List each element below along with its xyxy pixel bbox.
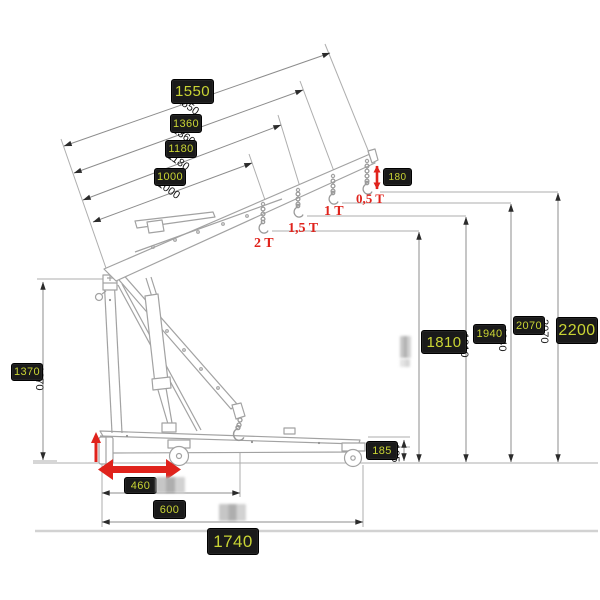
- blurred-watermark: [400, 336, 411, 358]
- dim-badge-1370: 1370: [11, 363, 43, 381]
- dim-badge-1940: 1940: [473, 324, 506, 344]
- dim-badge-1740: 1740: [207, 528, 259, 555]
- dim-badge-1360: 1360: [170, 114, 202, 133]
- blurred-watermark: [219, 504, 246, 521]
- hook-0-5t: [363, 164, 372, 194]
- base-beam: [100, 431, 360, 453]
- dim-badge-1810: 1810: [421, 330, 467, 354]
- dim-badge-2200: 2200: [556, 317, 598, 344]
- dim-badge-2070: 2070: [513, 316, 545, 335]
- front-caster-wheel: [168, 440, 190, 466]
- dim-badge-1000: 1000: [154, 168, 186, 186]
- dim-badge-180: 180: [383, 168, 412, 186]
- bolt-dots: [109, 299, 320, 444]
- mast: [96, 275, 123, 433]
- hydraulic-cylinder: [145, 277, 176, 432]
- mast-eye: [96, 294, 103, 301]
- dim-badge-185: 185: [366, 441, 398, 460]
- blurred-watermark: [156, 477, 185, 493]
- capacity-label-0-5t: 0,5 T: [356, 191, 384, 207]
- dim-badge-1550: 1550: [171, 79, 214, 104]
- capacity-label-1-5t: 1,5 T: [288, 221, 318, 237]
- cylinder-mount: [147, 220, 164, 233]
- crane-dimension-diagram: 1550 1360 1180 1000 1810 1940 2070 185 1…: [0, 0, 600, 600]
- capacity-label-2t: 2 T: [254, 236, 274, 252]
- crane-drawing: [0, 0, 600, 600]
- crane-body: [96, 149, 379, 467]
- blurred-watermark: [400, 359, 410, 367]
- base-tab: [284, 428, 295, 434]
- capacity-label-1t: 1 T: [324, 204, 344, 220]
- dim-badge-460: 460: [124, 477, 157, 494]
- dim-badge-600: 600: [153, 500, 186, 519]
- dim-badge-1180: 1180: [165, 140, 197, 158]
